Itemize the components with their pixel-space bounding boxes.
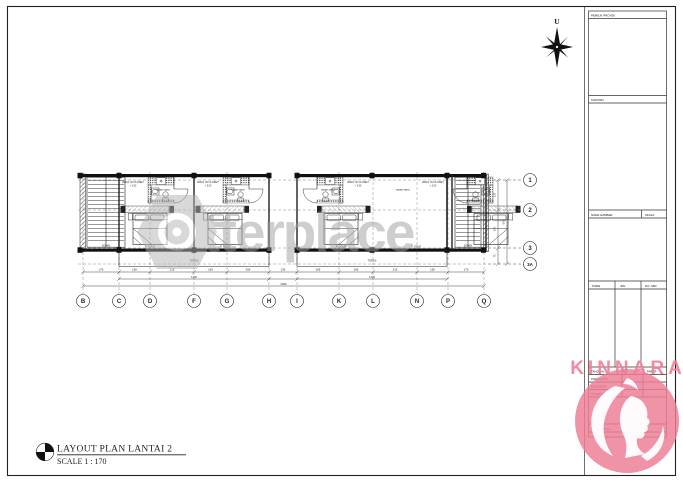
grid-lines-vertical [83,172,484,294]
svg-text:1100: 1100 [191,275,197,279]
svg-text:P: P [446,299,450,305]
svg-text:160: 160 [208,268,213,272]
svg-text:..........: .......... [625,385,633,389]
svg-text:TERAS: TERAS [368,259,377,263]
svg-text:PARAF: PARAF [647,370,657,374]
svg-text:WALK IN CLOSET: WALK IN CLOSET [422,180,444,184]
column-grid-bubbles: B C D F G H I K L N P Q [77,295,491,308]
svg-text:C: C [117,299,122,305]
svg-text:N: N [415,299,419,305]
svg-text:175: 175 [464,268,469,272]
stair-left [80,174,125,252]
svg-text:75: 75 [493,254,497,258]
svg-text:KAMAR MANDI: KAMAR MANDI [396,189,411,192]
svg-text:NO. LBR: NO. LBR [645,284,657,288]
svg-text:B: B [81,299,86,305]
stair-right [452,174,489,252]
svg-text:KETERANGAN: KETERANGAN [591,427,611,431]
svg-text:135: 135 [281,268,286,272]
svg-text:300: 300 [493,226,497,231]
svg-text:1: 1 [528,178,532,184]
svg-text:3: 3 [528,246,532,252]
svg-text:205: 205 [316,268,321,272]
page-title: LAYOUT PLAN LANTAI 2 [57,445,172,455]
svg-text:SKALA: SKALA [645,213,654,217]
stair-down-label: DOWN [464,244,472,248]
svg-text:205: 205 [246,268,251,272]
svg-text:KODE: KODE [592,284,600,288]
svg-text:165: 165 [354,268,359,272]
svg-text:2: 2 [528,208,532,214]
svg-text:R. TIDUR: R. TIDUR [145,247,155,249]
drawing-sheet: DOWN DOWN WALK IN CLOSET + 3.50 WALK IN … [0,0,683,482]
svg-text:..........: .......... [625,392,633,396]
svg-text:KAMAR MANDI: KAMAR MANDI [231,189,246,192]
svg-text:KAMAR MANDI: KAMAR MANDI [156,189,171,192]
svg-text:..........: .......... [625,377,633,381]
svg-text:TERAS: TERAS [190,259,199,263]
right-dimensions: 225 300 75 600 [488,178,523,266]
north-arrow-icon: U [541,17,573,68]
balcony [119,252,447,267]
floor-plan: DOWN DOWN WALK IN CLOSET + 3.50 WALK IN … [78,173,521,267]
stair-down-label: DOWN [102,244,110,248]
svg-text:KONSULTAN: KONSULTAN [591,377,608,381]
svg-text:K: K [337,299,342,305]
svg-text:WALK IN CLOSET: WALK IN CLOSET [197,180,219,184]
svg-text:H: H [267,299,271,305]
svg-text:L: L [371,299,375,305]
columns [78,173,487,253]
svg-text:2080: 2080 [280,282,287,286]
svg-text:215: 215 [170,268,175,272]
svg-text:215: 215 [393,268,398,272]
title-block: PEMILIK PROYEK CATATAN NAMA GAMBAR SKALA… [589,11,667,437]
svg-text:+ 3.50: + 3.50 [430,185,437,187]
svg-text:Q: Q [482,299,487,305]
svg-text:3A: 3A [527,262,534,267]
row-grid-bubbles: 1 2 3 3A [524,174,537,271]
svg-text:NAMA GAMBAR: NAMA GAMBAR [591,213,613,217]
svg-text:TANGGAL: TANGGAL [591,370,605,374]
scale-label: SCALE 1 : 170 [57,457,107,466]
svg-text:PEMILIK PROYEK: PEMILIK PROYEK [591,13,615,17]
svg-text:WALK IN CLOSET: WALK IN CLOSET [122,180,144,184]
svg-text:150: 150 [430,268,435,272]
svg-text:CATATAN: CATATAN [591,98,604,102]
svg-text:F: F [192,299,196,305]
svg-text:+ 3.50: + 3.50 [205,185,212,187]
sheet-title: LAYOUT PLAN LANTAI 2 SCALE 1 : 170 [36,443,186,466]
svg-text:170: 170 [99,268,104,272]
svg-text:DIPERIKSA: DIPERIKSA [591,392,606,396]
plan-canvas: DOWN DOWN WALK IN CLOSET + 3.50 WALK IN … [0,0,683,482]
svg-text:KAMAR MANDI: KAMAR MANDI [321,189,336,192]
bottom-dimensions: 170 150 215 160 205 135 205 165 215 150 … [81,268,486,288]
svg-text:I: I [296,299,298,305]
svg-text:G: G [225,299,230,305]
svg-text:R. TIDUR: R. TIDUR [220,247,230,249]
svg-text:DIGAMBAR: DIGAMBAR [591,385,606,389]
svg-text:150: 150 [132,268,137,272]
svg-text:+ 3.50: + 3.50 [130,185,137,187]
svg-text:R. TIDUR: R. TIDUR [336,247,346,249]
svg-text:+ 3.50: + 3.50 [355,185,362,187]
svg-text:1100: 1100 [369,275,375,279]
north-label: U [554,17,560,26]
svg-text:225: 225 [493,192,497,197]
svg-text:WALK IN CLOSET: WALK IN CLOSET [347,180,369,184]
svg-text:D: D [148,299,153,305]
svg-text:600: 600 [502,219,506,224]
svg-text:R. TIDUR: R. TIDUR [411,247,421,249]
svg-text:JML: JML [620,284,626,288]
